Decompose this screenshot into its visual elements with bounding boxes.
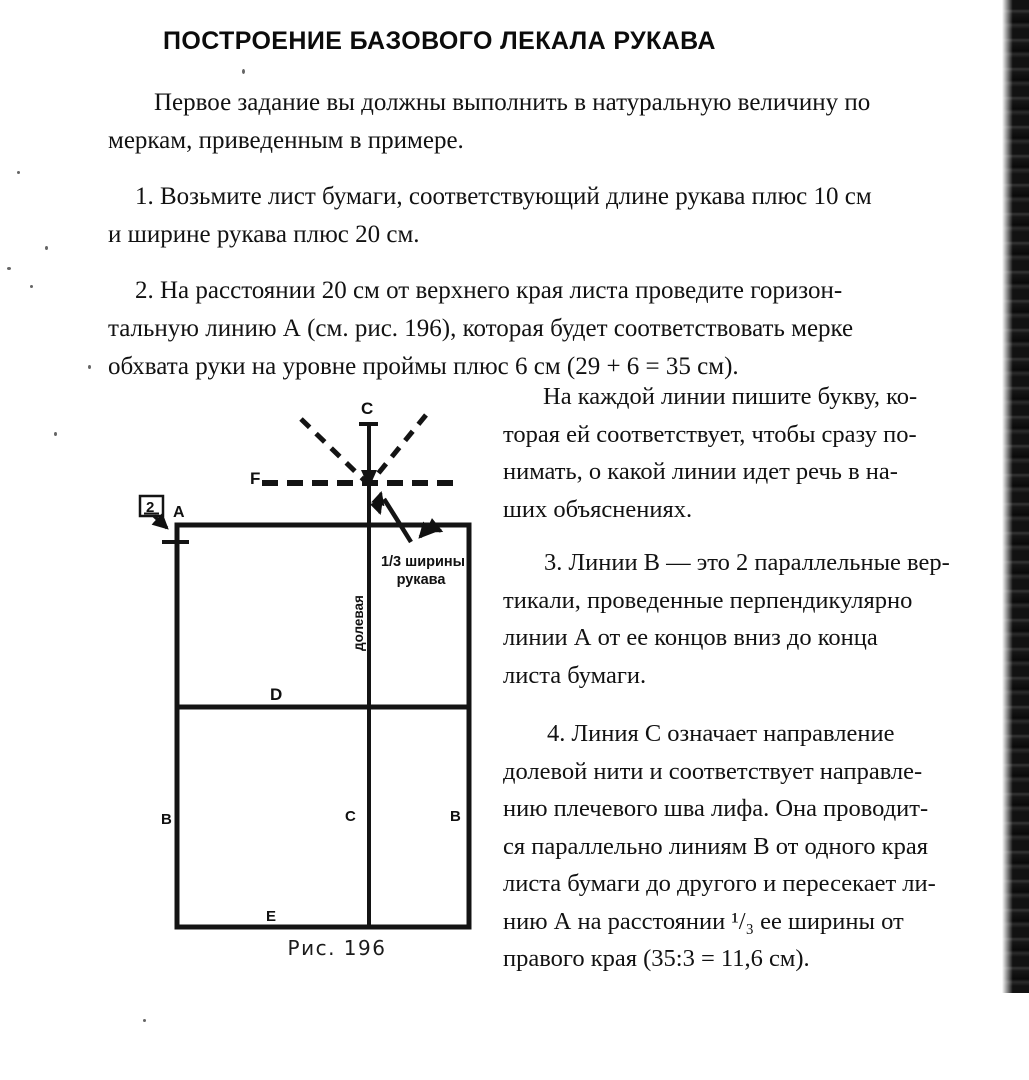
vertical-measure-arrow — [379, 493, 381, 513]
scan-speck — [242, 69, 245, 74]
label-b-left: B — [161, 811, 172, 828]
piece-number-arrow — [154, 516, 167, 528]
diagonal-left-dashed — [301, 419, 365, 481]
label-c-top: C — [361, 399, 373, 418]
sleeve-pattern-diagram: 2 C F A D B C B E 1/3 ширины рукава доле… — [0, 0, 1029, 1080]
measure-leader-curve — [384, 499, 411, 542]
scanned-book-page: ПОСТРОЕНИЕ БАЗОВОГО ЛЕКАЛА РУКАВА Первое… — [0, 0, 1029, 1080]
scan-speck — [30, 285, 33, 288]
diagonal-right-dashed — [372, 415, 426, 481]
third-width-label-line1: 1/3 ширины — [381, 554, 465, 570]
scan-gutter-band — [1002, 0, 1029, 993]
label-c-mid: C — [345, 808, 356, 825]
label-f: F — [250, 469, 260, 488]
label-e: E — [266, 908, 276, 925]
scan-speck — [143, 1019, 146, 1022]
scan-speck — [45, 246, 48, 250]
label-d: D — [270, 685, 282, 704]
label-b-right: B — [450, 808, 461, 825]
scan-speck — [17, 171, 20, 174]
grain-direction-label: долевая — [351, 595, 366, 651]
scan-speck — [7, 267, 11, 270]
horizontal-measure-arrow — [420, 529, 441, 537]
third-width-label-line2: рукава — [397, 572, 447, 588]
figure-caption: Рис. 196 — [262, 936, 412, 960]
label-a: A — [173, 504, 185, 521]
scan-speck — [88, 365, 91, 369]
scan-speck — [54, 432, 57, 436]
